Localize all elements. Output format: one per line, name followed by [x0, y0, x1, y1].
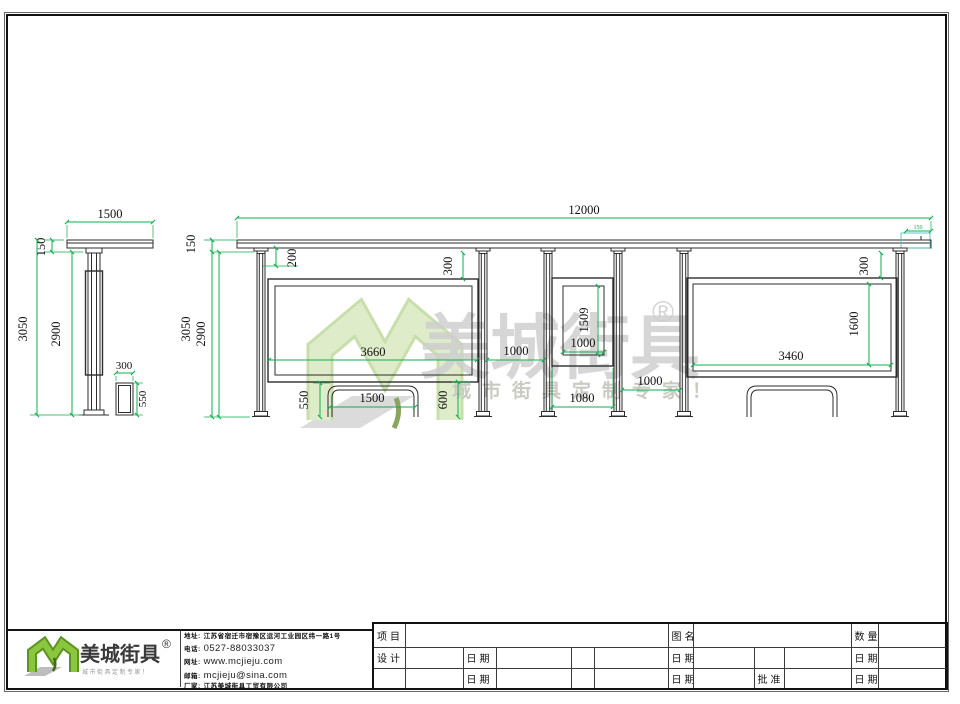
drawing-name-value-cell[interactable] — [693, 623, 851, 647]
web-label: 网址: — [184, 660, 201, 667]
web-value: www.mcjieju.com — [204, 657, 283, 667]
cad-sheet: { "colors": { "dimension_green": "#0fae4… — [0, 0, 960, 704]
design-value-cell[interactable] — [405, 647, 463, 668]
date-3-value-cell[interactable] — [878, 647, 947, 668]
label-date-1: 日期 — [463, 647, 496, 668]
label-design: 设计 — [373, 647, 405, 668]
date-4-value-cell[interactable] — [496, 668, 571, 689]
date-6-value-cell[interactable] — [878, 668, 947, 689]
footer-divider — [180, 631, 181, 687]
project-value-cell[interactable] — [405, 623, 668, 647]
label-date-6: 日期 — [851, 668, 878, 689]
label-date-2: 日期 — [668, 647, 693, 668]
date-2-value-cell[interactable] — [693, 647, 754, 668]
contact-phone: 电话: 0527-88033037 — [184, 644, 372, 654]
contact-address: 地址: 江苏省宿迁市宿豫区运河工业园区纬一路1号 — [184, 634, 372, 641]
label-project: 项目 — [373, 623, 405, 647]
date-1-value-cell[interactable] — [496, 647, 571, 668]
label-approve: 批准 — [754, 668, 784, 689]
address-value: 江苏省宿迁市宿豫区运河工业园区纬一路1号 — [204, 634, 341, 641]
contact-email: 邮箱: mcjieju@sina.com — [184, 671, 372, 681]
label-quantity: 数量 — [851, 623, 878, 647]
date-5-value-cell[interactable] — [693, 668, 754, 689]
quantity-value-cell[interactable] — [878, 623, 947, 647]
label-drawing-name: 图名 — [668, 623, 693, 647]
factory-value: 江苏美城街具工贸有限公司 — [204, 684, 288, 691]
label-date-5: 日期 — [668, 668, 693, 689]
title-block: 项目 图名 数量 设计 日期 日期 日期 日期 — [372, 622, 946, 688]
contact-block: 地址: 江苏省宿迁市宿豫区运河工业园区纬一路1号 电话: 0527-880330… — [184, 632, 372, 694]
email-label: 邮箱: — [184, 674, 201, 681]
email-value: mcjieju@sina.com — [204, 671, 288, 681]
label-date-3: 日期 — [851, 647, 878, 668]
label-date-4: 日期 — [463, 668, 496, 689]
phone-label: 电话: — [184, 647, 201, 654]
contact-web: 网址: www.mcjieju.com — [184, 657, 372, 667]
address-label: 地址: — [184, 634, 201, 641]
phone-value: 0527-88033037 — [204, 644, 276, 654]
factory-label: 厂家: — [184, 684, 201, 691]
contact-factory: 厂家: 江苏美城街具工贸有限公司 — [184, 684, 372, 691]
page-border-inner — [6, 14, 947, 690]
approve-value-cell[interactable] — [784, 668, 851, 689]
